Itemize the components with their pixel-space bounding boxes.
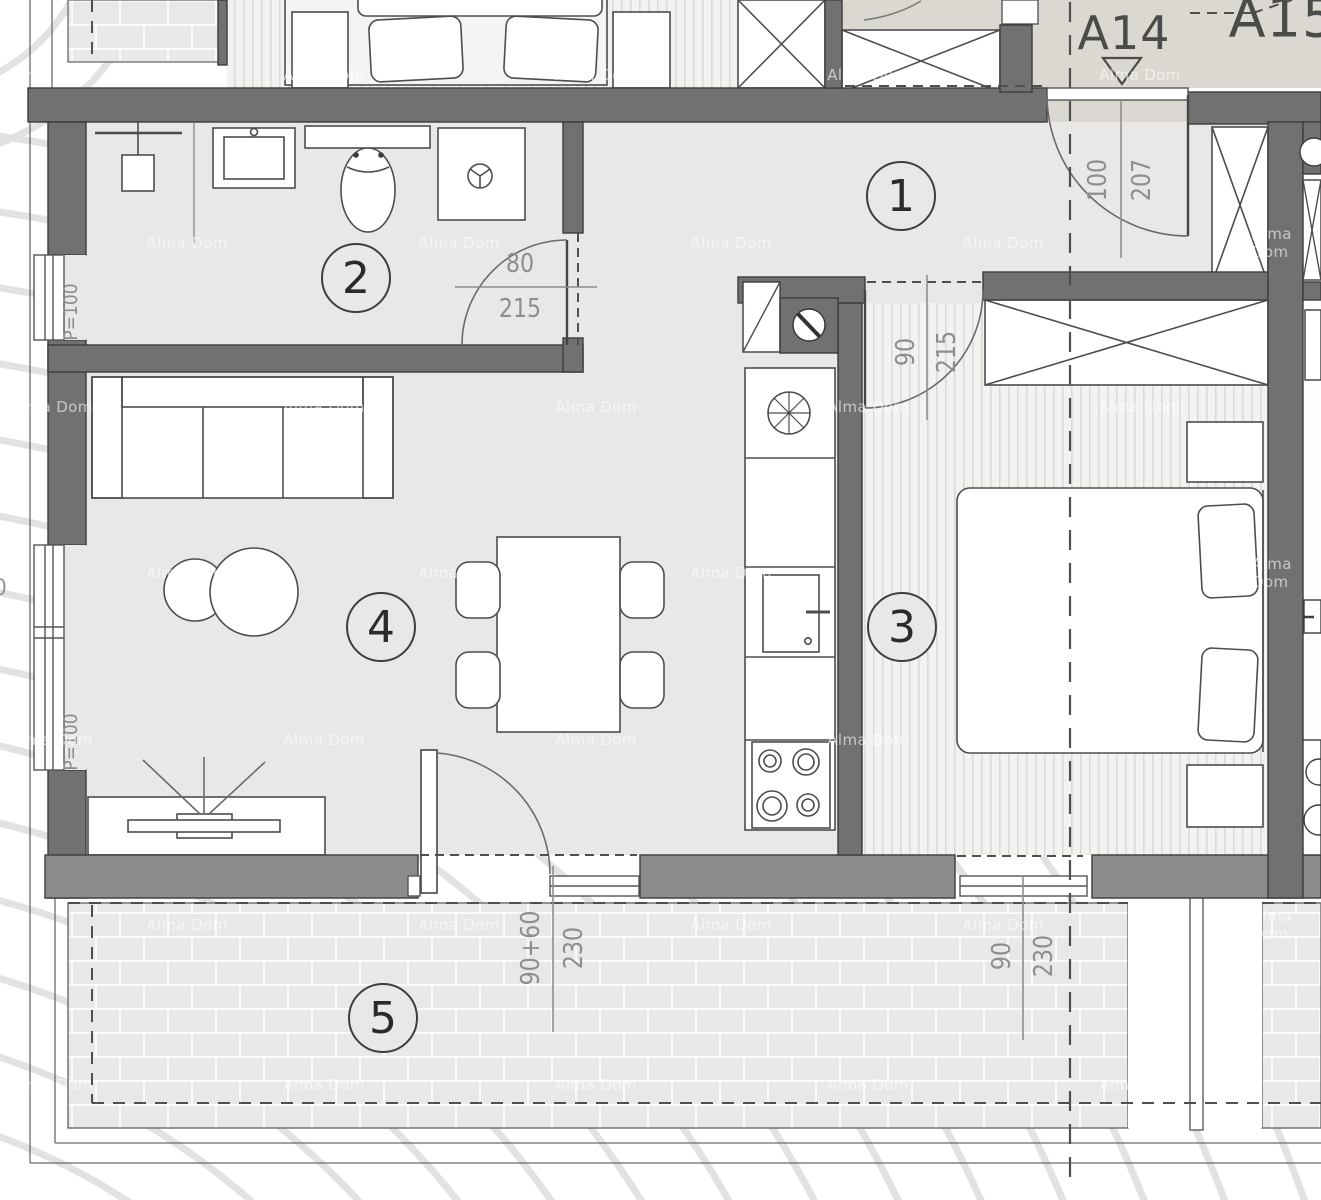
neighbor-nightstand: [613, 12, 670, 88]
coffee-table: [210, 548, 298, 636]
room-number-1: 1: [866, 161, 936, 231]
pillow: [1198, 648, 1259, 743]
boiler: [122, 155, 154, 191]
neighbor-pillow: [368, 16, 463, 83]
terrace-divider: [1190, 876, 1203, 1130]
stove: [752, 742, 830, 828]
sofa: [92, 377, 393, 498]
washbasin: [213, 128, 295, 188]
chair: [456, 652, 500, 708]
wall-bottom: [45, 855, 418, 898]
chair: [620, 652, 664, 708]
wall-bathroom-south: [48, 345, 583, 372]
wall-east: [1268, 122, 1303, 898]
room-number-2: 2: [321, 243, 391, 313]
wall-bathroom-east: [563, 122, 583, 233]
window: [34, 545, 64, 770]
wall-left: [48, 122, 86, 255]
room-number-5: 5: [348, 983, 418, 1053]
kitchen-fixtures: [745, 368, 835, 830]
kitchen-sink: [768, 392, 810, 434]
terrace-paving: [68, 903, 1128, 1128]
pillow: [1198, 504, 1259, 599]
dining-table: [497, 537, 620, 732]
neighbor-nightstand: [292, 12, 348, 88]
nightstand: [1187, 765, 1263, 827]
floor-plan-drawing: [0, 0, 1321, 1200]
edge-partial-label: 0: [0, 576, 7, 601]
room-number-4: 4: [346, 592, 416, 662]
room-number-3: 3: [867, 592, 937, 662]
neighbor-pillow: [503, 16, 598, 83]
chair: [456, 562, 500, 618]
entry-threshold: [1047, 88, 1188, 100]
terrace: [68, 876, 1321, 1130]
neighbor-terrace-floor: [68, 0, 220, 62]
window: [34, 255, 64, 340]
wall-bedroom-west: [838, 303, 862, 855]
chair: [620, 562, 664, 618]
neighbor-entry-door: [1002, 0, 1038, 24]
floor-plan-page: A14 A15 1 2 3 4 5 80 215 90 215 100 207 …: [0, 0, 1321, 1200]
nightstand: [1187, 422, 1263, 482]
shower: [438, 128, 525, 220]
wall-top: [28, 88, 1047, 122]
